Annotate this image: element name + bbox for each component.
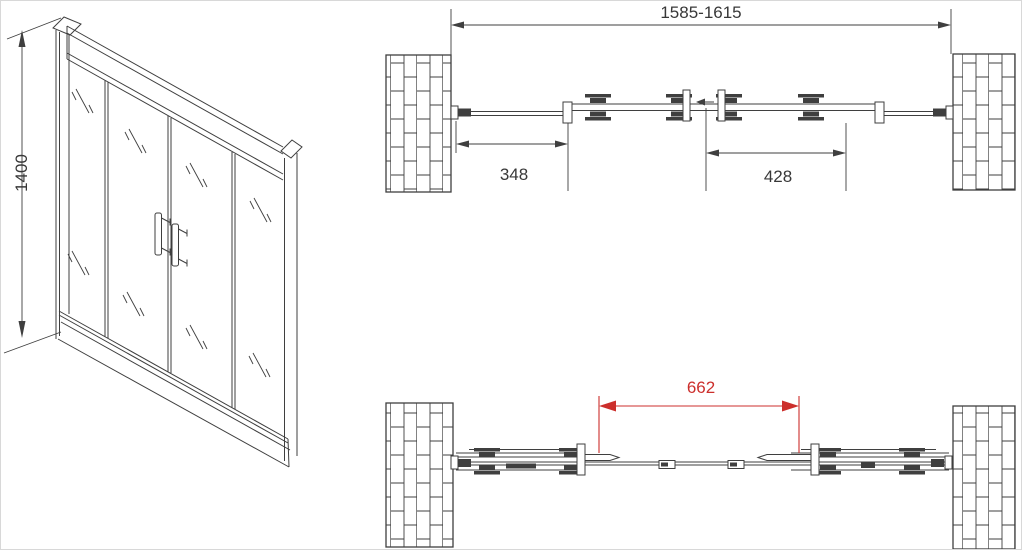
panel-mullions: [105, 80, 235, 409]
panel-clamp: [875, 102, 884, 123]
left-panel-stack: [451, 444, 619, 475]
height-dimension: 1400: [4, 18, 61, 353]
overall-width-label: 1585-1615: [660, 3, 741, 22]
right-frame-post: [281, 140, 302, 461]
roller-assembly: [474, 448, 500, 475]
right-panel-stack: [758, 444, 952, 475]
post-cap: [281, 140, 302, 158]
arrow-down-icon: [19, 321, 26, 338]
left-frame-post: [53, 17, 81, 339]
arrow-left-icon: [599, 401, 616, 412]
wall-bracket: [451, 106, 471, 119]
wall-bracket: [933, 106, 953, 119]
clear-opening-dimension: 662: [599, 378, 799, 453]
handle-stubs: [179, 229, 188, 267]
handle-stubs: [162, 218, 171, 256]
guide-block: [506, 464, 536, 469]
wall-bracket: [451, 456, 471, 469]
right-wall: [953, 54, 1015, 190]
drawing-svg: 1400: [1, 1, 1021, 549]
height-dimension-label: 1400: [12, 154, 31, 192]
handle-tab: [811, 444, 819, 475]
rail-lines: [58, 311, 290, 467]
wall-bracket: [931, 456, 952, 469]
guide-block: [861, 462, 875, 468]
post-lines: [285, 153, 298, 461]
glass-reflection-marks: [68, 89, 271, 377]
handle-bar: [172, 224, 179, 266]
arrow-left-icon: [456, 141, 469, 148]
post-lines: [56, 30, 69, 339]
arrow-right-icon: [555, 141, 568, 148]
arrow-left-icon: [706, 150, 719, 157]
roller-assembly: [585, 94, 611, 121]
handle-flag: [585, 455, 619, 461]
rail-lines: [67, 26, 283, 180]
arrow-right-icon: [938, 22, 951, 29]
fixed-panel-dimension: 348: [456, 121, 568, 191]
handle-tab: [718, 90, 725, 121]
panel-clamp: [563, 102, 572, 123]
door-panel-width-label: 428: [764, 167, 792, 186]
handle-tab: [577, 444, 585, 475]
overall-width-dimension: 1585-1615: [451, 3, 951, 55]
fixed-panel-width-label: 348: [500, 165, 528, 184]
handle-bar: [155, 213, 162, 255]
left-wall: [386, 55, 451, 192]
arrow-right-icon: [782, 401, 799, 412]
handle-tab: [683, 90, 690, 121]
plan-view-closed: 1585-1615: [386, 3, 1015, 192]
dimension-lines: [599, 396, 799, 453]
top-rail: [67, 26, 283, 180]
left-wall: [386, 403, 453, 547]
guide-clamp-block: [730, 463, 737, 467]
plan-view-open: 662: [386, 378, 1015, 549]
right-wall: [953, 406, 1015, 549]
bottom-rail: [58, 311, 290, 467]
roller-assembly: [798, 94, 824, 121]
guide-clamp-block: [661, 463, 668, 467]
technical-drawing-canvas: 1400: [0, 0, 1022, 550]
clear-opening-label: 662: [687, 378, 715, 397]
arrow-left-icon: [451, 22, 464, 29]
track-assembly-closed: [451, 90, 953, 123]
elevation-view: 1400: [4, 17, 302, 467]
glass-panels: [68, 80, 271, 409]
arrow-right-icon: [833, 150, 846, 157]
roller-assembly: [899, 448, 925, 475]
handle-flag: [758, 455, 811, 461]
